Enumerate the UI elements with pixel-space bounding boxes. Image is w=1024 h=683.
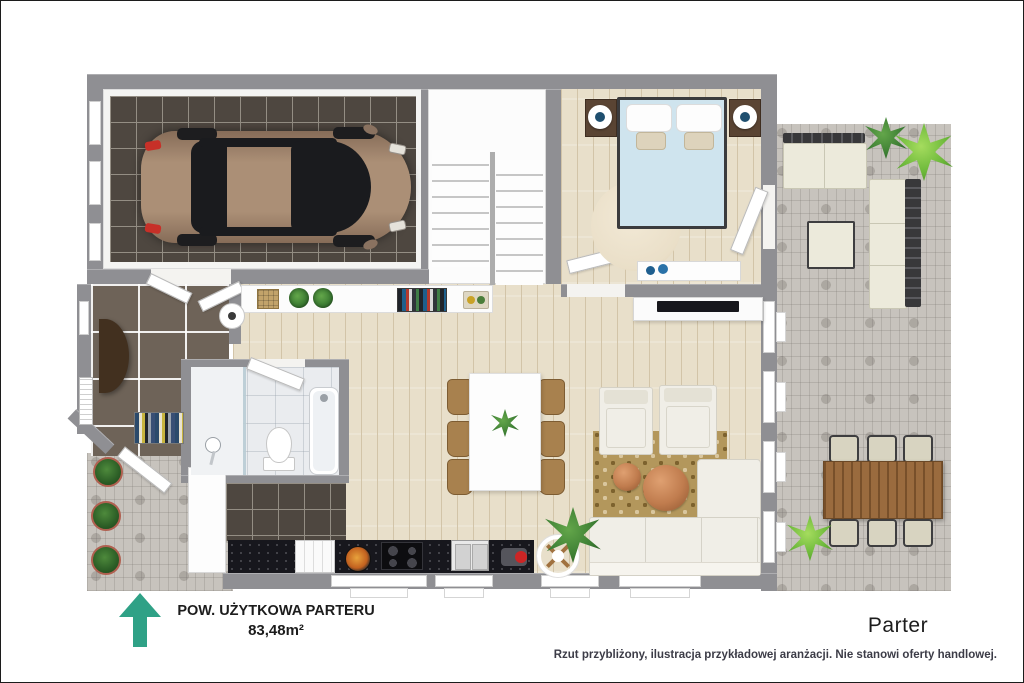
bed-pillow bbox=[626, 104, 672, 132]
armchair bbox=[599, 387, 653, 455]
radiator bbox=[79, 377, 93, 425]
chair-cushion bbox=[552, 550, 564, 562]
outdoor-chair bbox=[867, 435, 897, 463]
kettle bbox=[501, 548, 527, 566]
kettle-lid bbox=[515, 551, 527, 563]
bed-pillow bbox=[676, 104, 722, 132]
outdoor-chair bbox=[903, 519, 933, 547]
floor-label: Parter bbox=[846, 614, 950, 638]
garage-side-window-2 bbox=[89, 161, 101, 205]
armchair bbox=[659, 385, 717, 455]
sink-basin bbox=[472, 544, 488, 570]
area-label: POW. UŻYTKOWA PARTERU bbox=[169, 602, 383, 620]
stairs-left-flight bbox=[432, 150, 489, 267]
bed-cushion bbox=[636, 132, 666, 150]
stairs-divider-wall bbox=[490, 152, 495, 285]
kitchen-floor bbox=[226, 483, 346, 541]
book-row bbox=[397, 288, 447, 312]
shower-glass bbox=[243, 367, 246, 475]
bedroom-console bbox=[637, 261, 741, 281]
disclaimer: Rzut przybliżony, ilustracja przykładowe… bbox=[554, 649, 997, 661]
wall-bath-right bbox=[339, 359, 349, 483]
window-right-1 bbox=[763, 301, 775, 353]
car-headlight bbox=[388, 219, 407, 232]
car-rear-window bbox=[191, 141, 227, 233]
bush-pot bbox=[93, 457, 123, 487]
car-headlight bbox=[388, 142, 407, 155]
coffee-table-large bbox=[643, 465, 689, 511]
bathtub-basin bbox=[313, 391, 335, 471]
sink-basin bbox=[455, 544, 471, 570]
blue-vase bbox=[646, 266, 655, 275]
bed-cushion bbox=[684, 132, 714, 150]
kitchen-tall-cabinet bbox=[188, 467, 226, 573]
bush-pot bbox=[91, 545, 121, 575]
window-sill bbox=[777, 453, 785, 481]
car-taillight bbox=[144, 140, 161, 152]
area-label-block: POW. UŻYTKOWA PARTERU 83,48m² bbox=[169, 602, 383, 641]
car bbox=[141, 131, 411, 243]
window-bottom-2 bbox=[435, 575, 493, 587]
nightstand bbox=[585, 99, 617, 137]
outdoor-chair bbox=[829, 435, 859, 463]
window-right-4 bbox=[763, 511, 775, 563]
sofa-backrest bbox=[590, 562, 760, 575]
garage-side-window-3 bbox=[89, 223, 101, 261]
outdoor-dining-table bbox=[823, 461, 943, 519]
double-bed bbox=[617, 97, 727, 229]
kitchen-sink bbox=[451, 540, 489, 571]
doormat-rug bbox=[134, 412, 184, 444]
wall-top bbox=[87, 74, 777, 89]
bathtub bbox=[309, 387, 339, 475]
car-taillight bbox=[144, 223, 161, 235]
storage-basket bbox=[257, 289, 279, 309]
window-sill bbox=[631, 589, 689, 597]
dining-chair bbox=[539, 459, 565, 495]
cooktop bbox=[381, 542, 423, 570]
blue-vase bbox=[658, 264, 668, 274]
sofa-main bbox=[589, 517, 761, 576]
lamp-center bbox=[740, 112, 750, 122]
wall-stairs-bedroom bbox=[546, 89, 561, 284]
fruit-bowl bbox=[345, 546, 371, 572]
patio-ottoman bbox=[807, 221, 855, 269]
window-bottom-3 bbox=[541, 575, 599, 587]
patio-sofa-frame bbox=[905, 179, 921, 307]
staircase-area bbox=[428, 89, 546, 284]
nightstand bbox=[729, 99, 761, 137]
armchair-back bbox=[604, 390, 648, 404]
outdoor-chair bbox=[903, 435, 933, 463]
umbrella-stand bbox=[219, 303, 245, 329]
armchair-seat bbox=[666, 406, 710, 448]
stairs-right-flight bbox=[496, 160, 543, 285]
hall-side-window bbox=[79, 301, 89, 335]
car-body bbox=[141, 131, 411, 243]
armchair-back bbox=[664, 388, 712, 402]
decor-tray bbox=[463, 291, 489, 309]
window-sill bbox=[777, 523, 785, 551]
dining-chair bbox=[539, 421, 565, 457]
coffee-table-small bbox=[613, 463, 641, 491]
window-right-3 bbox=[763, 441, 775, 493]
car-windshield bbox=[291, 141, 371, 233]
lamp-center bbox=[595, 112, 605, 122]
decor-bowl bbox=[477, 296, 485, 304]
patio-sofa-two-seat bbox=[783, 143, 867, 189]
outdoor-chair bbox=[867, 519, 897, 547]
window-bottom-4 bbox=[619, 575, 701, 587]
window-bottom-1 bbox=[331, 575, 427, 587]
north-arrow-icon bbox=[119, 593, 161, 647]
tv-screen bbox=[657, 301, 739, 312]
potted-plant bbox=[289, 288, 309, 308]
area-value: 83,48m² bbox=[169, 622, 383, 641]
patio-sofa-three-seat bbox=[869, 179, 907, 309]
wall-garage-south bbox=[87, 269, 429, 284]
window-right-2 bbox=[763, 371, 775, 423]
decor-bowl bbox=[467, 296, 475, 304]
armchair-seat bbox=[606, 408, 646, 448]
window-sill bbox=[351, 589, 407, 597]
umbrella-stand-center bbox=[228, 312, 236, 320]
shower-floor bbox=[191, 367, 243, 475]
outdoor-chair bbox=[829, 519, 859, 547]
sofa-chaise bbox=[697, 459, 761, 523]
window-sill bbox=[445, 589, 483, 597]
window-sill bbox=[777, 383, 785, 411]
bedroom-door-opening bbox=[567, 284, 625, 297]
potted-plant bbox=[313, 288, 333, 308]
window-sill bbox=[551, 589, 589, 597]
window-sill bbox=[777, 313, 785, 341]
floorplan-image: POW. UŻYTKOWA PARTERU 83,48m² Parter Rzu… bbox=[0, 0, 1024, 683]
dining-chair bbox=[539, 379, 565, 415]
dishwasher bbox=[295, 540, 335, 573]
wall-garage-stairs bbox=[421, 89, 428, 269]
patio-sofa-frame bbox=[783, 133, 865, 143]
bush-pot bbox=[91, 501, 121, 531]
garage-side-window-1 bbox=[89, 101, 101, 145]
bathtub-faucet bbox=[320, 394, 328, 402]
toilet-bowl bbox=[266, 427, 292, 463]
